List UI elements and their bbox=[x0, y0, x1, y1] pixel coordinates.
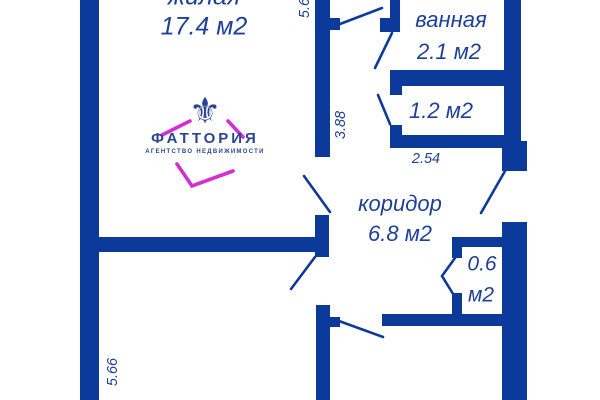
wall-closet-bottom-stub bbox=[452, 293, 462, 315]
dimension-top-vertical: 5.6 bbox=[298, 0, 313, 18]
logo-frame-segment-bottom bbox=[177, 164, 233, 186]
wall-corridor-left-cap bbox=[315, 215, 329, 257]
fleur-de-lis-icon: ⚜ bbox=[145, 93, 265, 129]
door-swing-lower-left-room bbox=[291, 257, 315, 289]
door-swing-bathroom bbox=[375, 33, 392, 68]
room-label-living-name: жилая bbox=[168, 0, 240, 10]
agency-logo: ⚜ ФАТТОРИЯ АГЕНТСТВО НЕДВИЖИМОСТИ bbox=[145, 93, 265, 155]
room-label-bathroom-area: 2.1 м2 bbox=[417, 41, 481, 63]
wall-divider-left-cap bbox=[390, 70, 402, 95]
wall-left-outer bbox=[80, 0, 99, 400]
room-label-living-area: 17.4 м2 bbox=[161, 15, 248, 40]
wall-bathroom-left-top bbox=[390, 0, 400, 32]
door-swing-right-entry bbox=[481, 171, 505, 213]
room-label-storage-area: 1.2 м2 bbox=[409, 100, 473, 122]
door-swing-storage bbox=[378, 95, 390, 124]
door-fold-closet bbox=[442, 258, 455, 297]
logo-tagline-text: АГЕНТСТВО НЕДВИЖИМОСТИ bbox=[145, 149, 265, 155]
wall-living-bottom-divider bbox=[99, 237, 316, 252]
room-label-bathroom-name: ванная bbox=[415, 9, 486, 31]
dimension-mid-vertical: 3.88 bbox=[334, 111, 349, 139]
door-swing-living bbox=[304, 176, 330, 212]
wall-closet-top-cap bbox=[452, 237, 462, 258]
room-label-closet-area-line2: м2 bbox=[468, 285, 494, 306]
logo-brand-text: ФАТТОРИЯ bbox=[145, 131, 265, 146]
wall-right-outer-upper bbox=[504, 0, 521, 141]
room-label-closet-area-line1: 0.6 bbox=[467, 254, 496, 275]
door-swing-entry-top bbox=[340, 8, 382, 24]
dimension-storage-width: 2.54 bbox=[412, 152, 440, 167]
wall-doorframe-tick-top bbox=[330, 18, 340, 30]
wall-right-outer-lower bbox=[502, 222, 527, 400]
room-label-corridor-name: коридор bbox=[358, 193, 442, 215]
wall-doorframe-tick-bottom bbox=[330, 317, 340, 327]
door-swing-lower-right-room bbox=[339, 321, 383, 337]
wall-corridor-left-upper bbox=[315, 0, 330, 157]
floor-plan-canvas: жилая 17.4 м2 ванная 2.1 м2 1.2 м2 корид… bbox=[0, 0, 600, 400]
dimension-bottom-left-vertical: 5.66 bbox=[106, 358, 121, 386]
wall-corridor-bottom bbox=[382, 314, 503, 326]
wall-storage-bottom bbox=[390, 135, 504, 148]
wall-right-door-jamb-upper bbox=[502, 141, 527, 171]
room-label-corridor-area: 6.8 м2 bbox=[368, 223, 432, 245]
wall-bathroom-storage-divider bbox=[390, 70, 504, 86]
wall-corridor-left-lower bbox=[316, 305, 330, 400]
